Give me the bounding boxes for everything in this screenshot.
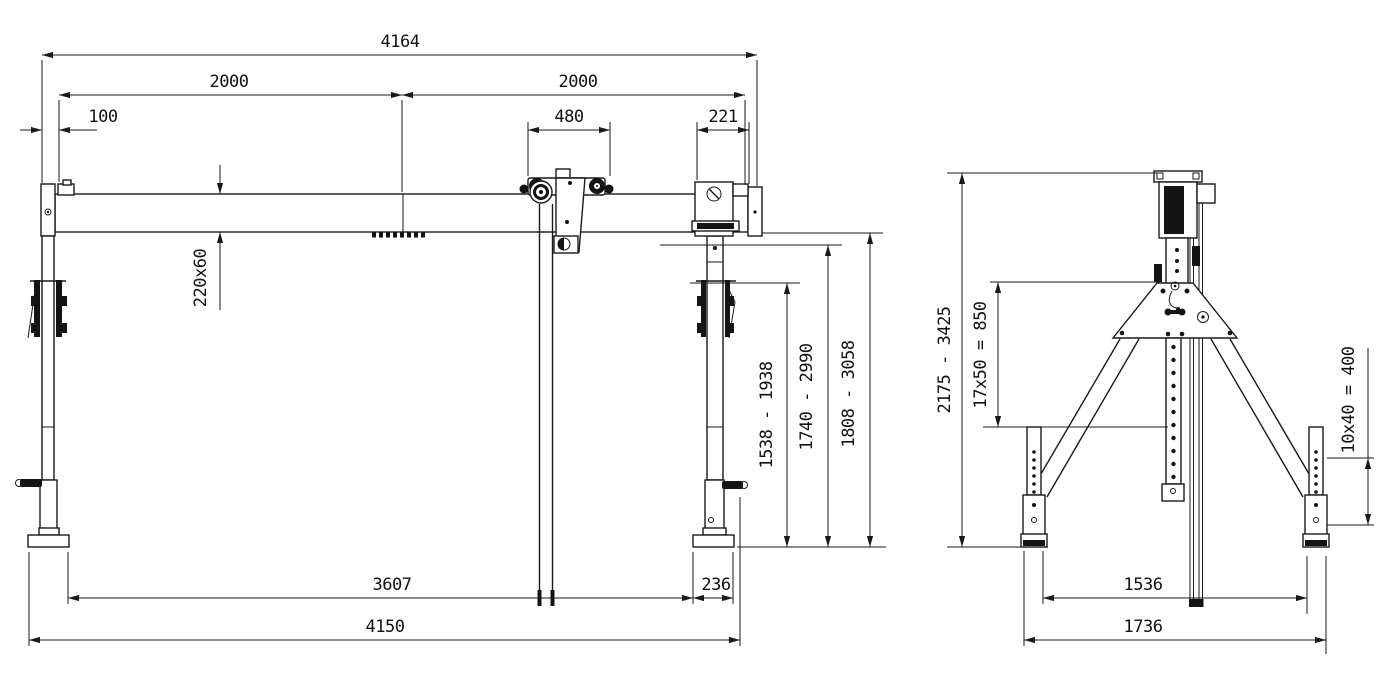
front-dimensions: 4164 2000 2000 100 480 221 220x60 1538 -… bbox=[20, 32, 886, 646]
dim-base-overall-width: 1736 bbox=[1124, 617, 1163, 637]
left-leg bbox=[16, 236, 70, 547]
dim-leg-hole-pattern: 10x40 = 400 bbox=[1339, 346, 1359, 453]
dim-hook-height-range: 1538 - 1938 bbox=[757, 361, 777, 468]
dim-overall-width: 4164 bbox=[381, 32, 420, 52]
motor-box bbox=[1197, 184, 1215, 203]
gusset-plate bbox=[1113, 282, 1237, 338]
dim-clearance-height-range: 1808 - 3058 bbox=[839, 340, 859, 447]
front-view: 4164 2000 2000 100 480 221 220x60 1538 -… bbox=[16, 32, 887, 646]
crank-handle bbox=[722, 481, 743, 489]
drawing-canvas: 4164 2000 2000 100 480 221 220x60 1538 -… bbox=[0, 0, 1400, 700]
dim-trolley-width: 480 bbox=[554, 107, 583, 127]
dim-overall-height-range: 2175 - 3425 bbox=[935, 306, 955, 413]
dim-mast-hole-pattern: 17x50 = 850 bbox=[971, 301, 991, 408]
side-dimensions: 2175 - 3425 17x50 = 850 10x40 = 400 1536… bbox=[935, 173, 1374, 654]
dim-base-overall-span: 4150 bbox=[366, 617, 405, 637]
dim-beam-section: 220x60 bbox=[191, 249, 211, 308]
dim-span-left: 2000 bbox=[210, 72, 249, 92]
height-adjustment-strip bbox=[1162, 338, 1184, 501]
right-leg bbox=[692, 182, 748, 547]
foot-plate bbox=[693, 535, 734, 547]
side-view: 2175 - 3425 17x50 = 850 10x40 = 400 1536… bbox=[935, 171, 1374, 654]
crank-handle bbox=[20, 479, 42, 487]
winch-head bbox=[1154, 171, 1215, 284]
trolley-roller bbox=[605, 185, 614, 194]
hoist-trolley bbox=[520, 169, 614, 606]
dim-span-right: 2000 bbox=[559, 72, 598, 92]
dim-base-inner-span: 3607 bbox=[373, 575, 412, 595]
dim-end-bracket-width: 221 bbox=[708, 107, 737, 127]
trolley-roller bbox=[520, 185, 529, 194]
foot-plate bbox=[28, 535, 69, 547]
dim-base-inner-width: 1536 bbox=[1124, 575, 1163, 595]
dim-lift-height-range: 1740 - 2990 bbox=[797, 343, 817, 450]
dim-foot-length: 236 bbox=[701, 575, 730, 595]
dim-left-offset: 100 bbox=[88, 107, 117, 127]
technical-drawing: 4164 2000 2000 100 480 221 220x60 1538 -… bbox=[0, 0, 1400, 700]
